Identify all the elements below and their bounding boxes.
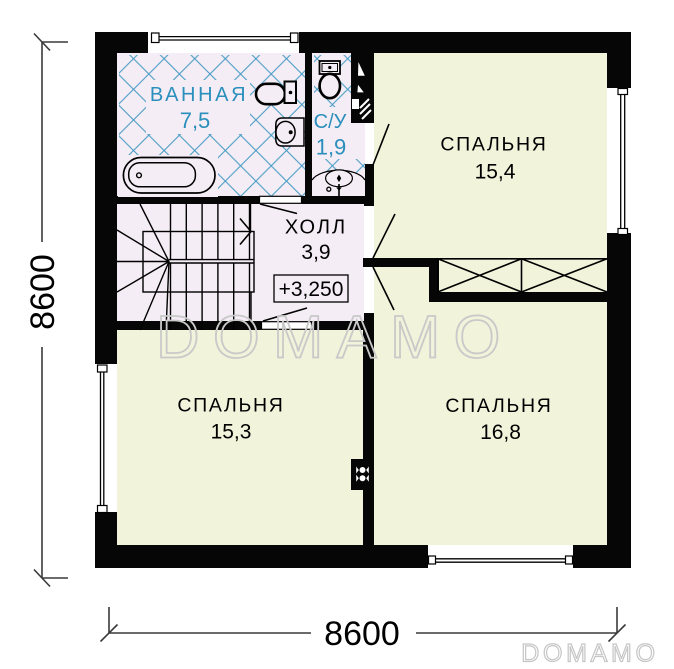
svg-text:СПАЛЬНЯ: СПАЛЬНЯ <box>440 133 547 155</box>
svg-text:1,9: 1,9 <box>316 135 347 160</box>
svg-text:СПАЛЬНЯ: СПАЛЬНЯ <box>445 395 552 417</box>
svg-text:ВАННАЯ: ВАННАЯ <box>150 84 248 106</box>
svg-text:8600: 8600 <box>324 615 400 653</box>
svg-text:3,9: 3,9 <box>301 241 330 264</box>
svg-text:8600: 8600 <box>24 254 62 330</box>
svg-text:DOMAMO: DOMAMO <box>521 640 658 668</box>
svg-text:ХОЛЛ: ХОЛЛ <box>285 217 347 239</box>
svg-text:15,3: 15,3 <box>211 421 252 444</box>
svg-text:С/У: С/У <box>314 111 347 133</box>
svg-text:16,8: 16,8 <box>480 421 521 444</box>
svg-text:СПАЛЬНЯ: СПАЛЬНЯ <box>177 394 284 416</box>
svg-text:DOMAMO: DOMAMO <box>156 304 514 371</box>
svg-text:+3,250: +3,250 <box>279 278 344 301</box>
svg-text:15,4: 15,4 <box>475 160 516 183</box>
svg-text:7,5: 7,5 <box>180 108 211 133</box>
